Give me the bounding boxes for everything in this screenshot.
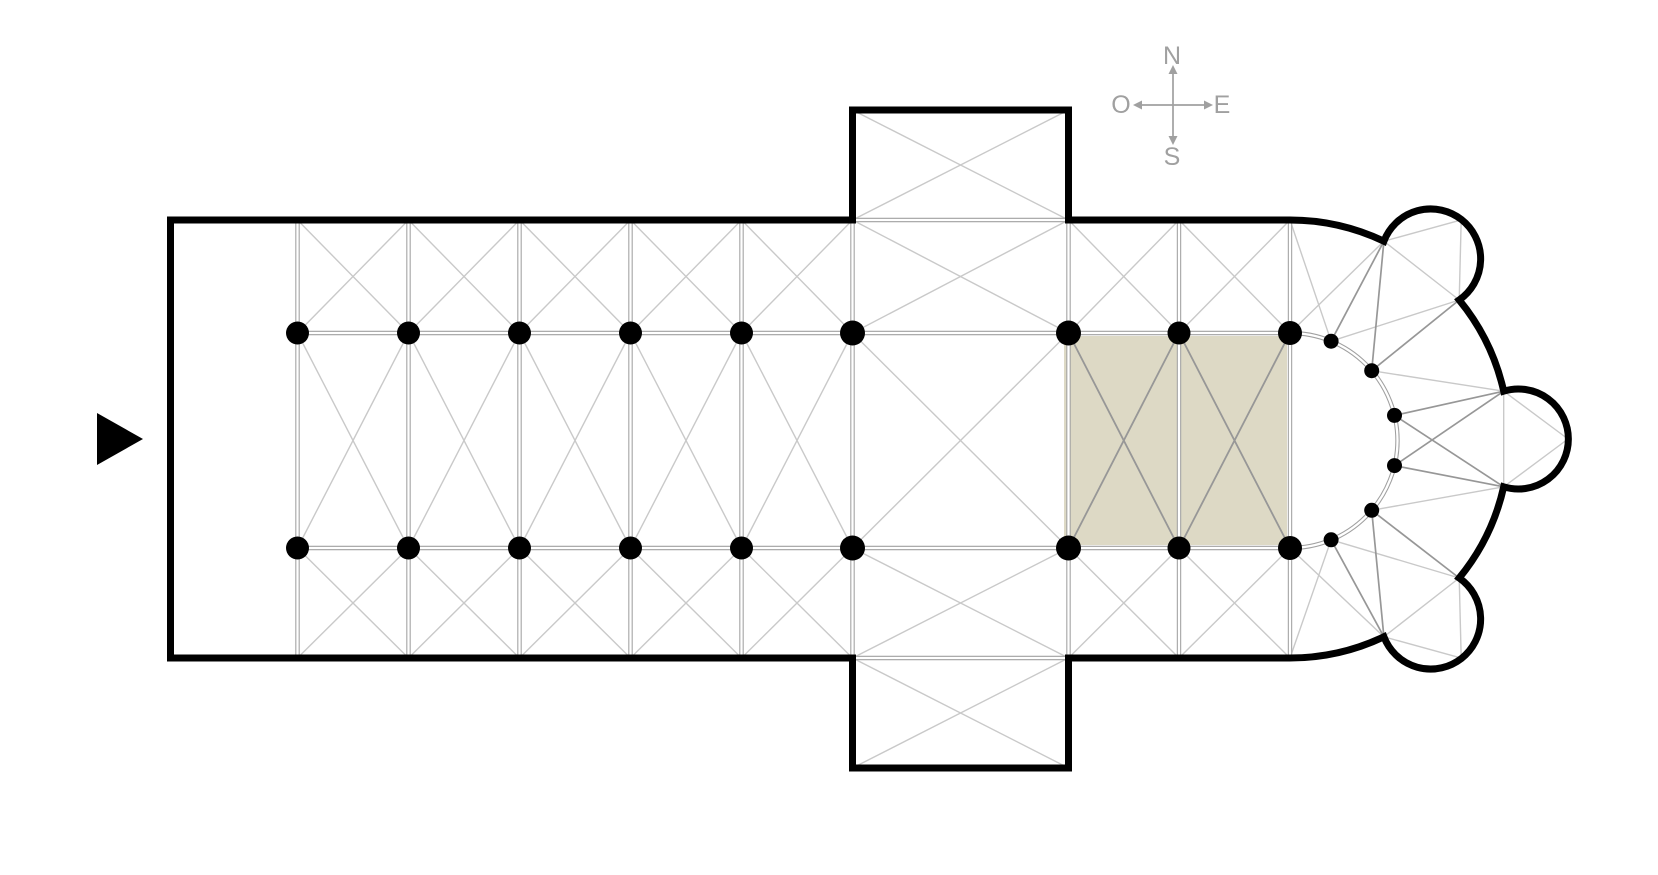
highlighted-choir-bays[interactable]: [1064, 336, 1287, 545]
ambulatory-light-ribs: [1290, 220, 1568, 658]
cathedral-floor-plan: N E S O: [0, 0, 1658, 875]
compass-label-east: E: [1214, 91, 1231, 119]
compass-arrow-west-icon: [1133, 101, 1142, 110]
outer-wall-outline: [171, 110, 1569, 768]
compass-label-south: S: [1164, 143, 1181, 171]
west-entrance-marker-icon: [97, 413, 143, 465]
ambulatory-dark-ribs: [1331, 241, 1504, 637]
hemicycle-column-dots: [1324, 334, 1402, 548]
compass-label-west: O: [1111, 91, 1130, 119]
ambulatory-rib-web: [1290, 220, 1568, 658]
compass-arrow-east-icon: [1204, 101, 1213, 110]
compass-label-north: N: [1163, 42, 1181, 70]
compass-rose-icon: N E S O: [1111, 42, 1230, 171]
floor-plan-page: N E S O: [0, 0, 1658, 875]
apse-hemicycle-arcade: [1290, 333, 1398, 548]
